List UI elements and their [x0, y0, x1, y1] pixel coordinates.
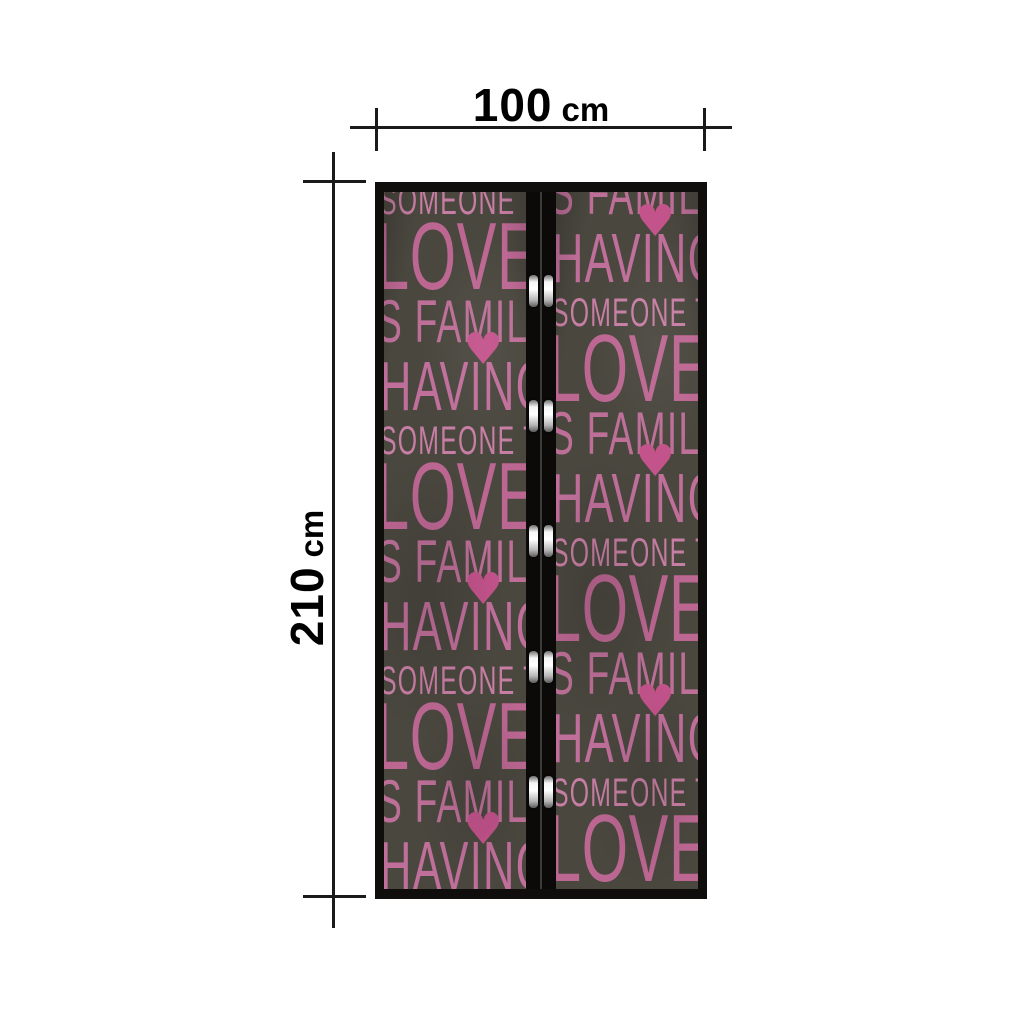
height-dimension-tick-top [303, 180, 366, 183]
pattern-row: S FAMILY [556, 406, 698, 462]
product-dimension-figure: 100cm 210cm LOVES FAMILYHAVING♥SOMEONE T… [0, 0, 1024, 1024]
pattern-word: HAVING [556, 222, 698, 294]
pattern-row: HAVING♥ [556, 462, 698, 534]
width-dimension-tick-right [703, 108, 706, 151]
magnet-clasp-pair [526, 275, 556, 307]
height-value: 210 [281, 566, 333, 646]
pattern-word: HAVING [556, 462, 698, 534]
pattern-word: LOVE [384, 220, 526, 294]
pattern-word: S FAMILY [384, 294, 526, 350]
pattern-word: HAVING [384, 590, 526, 662]
magnet-clasp [529, 776, 538, 808]
curtain-panel-left: LOVES FAMILYHAVING♥SOMEONE TOLOVES FAMIL… [384, 192, 526, 889]
pattern-row: S FAMILY [384, 294, 526, 350]
love-print-pattern: LOVES FAMILYHAVING♥SOMEONE TOLOVES FAMIL… [384, 192, 526, 889]
pattern-row: HAVING♥ [384, 830, 526, 889]
width-dimension-label: 100cm [350, 78, 732, 132]
screen-door-curtain: LOVES FAMILYHAVING♥SOMEONE TOLOVES FAMIL… [375, 182, 707, 899]
magnet-clasp-pair [526, 525, 556, 557]
width-value: 100 [473, 79, 553, 131]
pattern-row: LOVE [556, 812, 698, 886]
magnet-clasp-pair [526, 776, 556, 808]
pattern-word: LOVE [556, 812, 698, 886]
magnet-clasp-pair [526, 651, 556, 683]
pattern-word: S FAMILY [384, 534, 526, 590]
pattern-word: S FAMILY [556, 406, 698, 462]
magnet-clasp [544, 776, 553, 808]
pattern-word: S FAMILY [384, 774, 526, 830]
width-dimension-line [350, 126, 732, 129]
pattern-row: S FAMILY [384, 534, 526, 590]
magnetic-center-seam [526, 192, 556, 889]
pattern-word: S FAMILY [556, 192, 698, 222]
magnet-clasp [529, 525, 538, 557]
height-unit: cm [293, 510, 330, 558]
love-print-pattern: LOVES FAMILYHAVING♥SOMEONE TOLOVES FAMIL… [556, 192, 698, 889]
pattern-word: LOVE [556, 332, 698, 406]
height-dimension-tick-bottom [303, 895, 366, 898]
pattern-row: LOVE [556, 572, 698, 646]
pattern-word: S FAMILY [556, 646, 698, 702]
magnet-clasp [544, 400, 553, 432]
pattern-row: LOVE [384, 700, 526, 774]
pattern-row: HAVING♥ [384, 590, 526, 662]
pattern-word: HAVING [384, 830, 526, 889]
pattern-word: S FAMILY [556, 886, 698, 889]
pattern-row: S FAMILY [384, 774, 526, 830]
magnet-clasp [529, 651, 538, 683]
pattern-word: HAVING [384, 350, 526, 422]
pattern-row: LOVE [384, 460, 526, 534]
magnet-clasp [544, 651, 553, 683]
width-unit: cm [562, 91, 610, 128]
curtain-panel-right: LOVES FAMILYHAVING♥SOMEONE TOLOVES FAMIL… [556, 192, 698, 889]
pattern-row: HAVING♥ [556, 222, 698, 294]
pattern-word: LOVE [384, 460, 526, 534]
magnet-clasp [544, 525, 553, 557]
width-dimension-tick-left [375, 108, 378, 151]
height-dimension-line [332, 152, 335, 928]
pattern-row: LOVE [384, 220, 526, 294]
pattern-row: HAVING♥ [556, 702, 698, 774]
pattern-word: LOVE [556, 572, 698, 646]
magnet-clasp [529, 275, 538, 307]
pattern-row: S FAMILY [556, 886, 698, 889]
pattern-row: LOVE [556, 332, 698, 406]
height-dimension-label: 210cm [280, 510, 334, 646]
pattern-word: LOVE [384, 700, 526, 774]
magnet-clasp [544, 275, 553, 307]
magnet-clasp [529, 400, 538, 432]
pattern-row: S FAMILY [556, 192, 698, 222]
pattern-row: S FAMILY [556, 646, 698, 702]
pattern-row: HAVING♥ [384, 350, 526, 422]
pattern-word: HAVING [556, 702, 698, 774]
magnet-clasp-pair [526, 400, 556, 432]
